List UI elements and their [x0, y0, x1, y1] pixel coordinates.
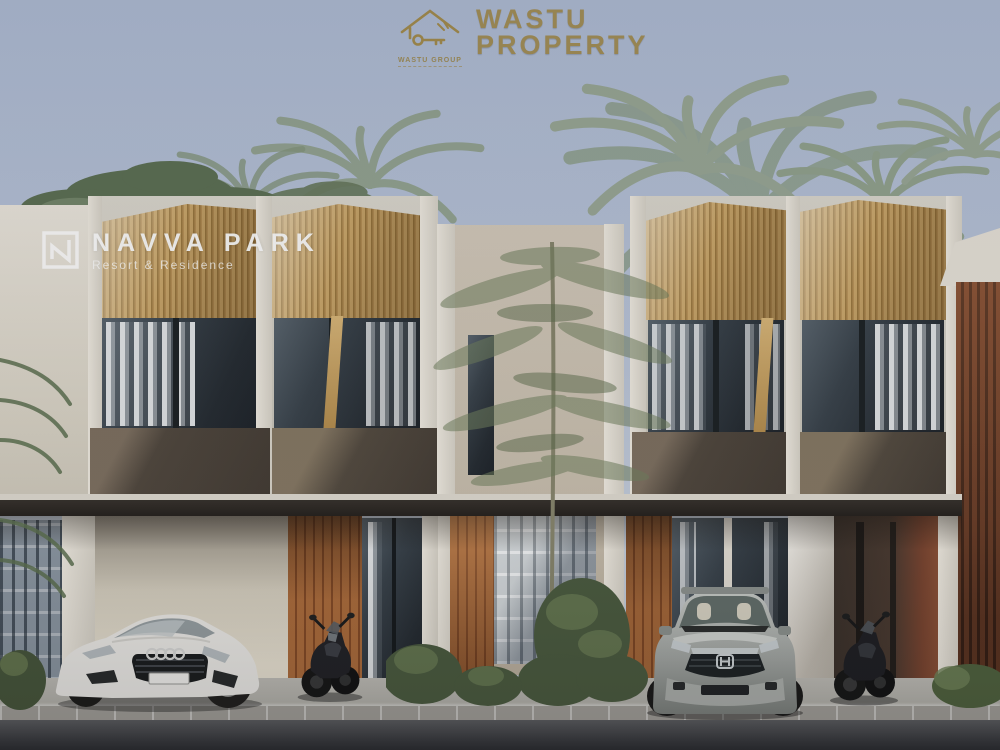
facade-mullion	[786, 196, 800, 508]
window-frame-bar	[173, 318, 179, 430]
curtain	[366, 322, 416, 426]
wastu-caption-rule	[398, 66, 462, 67]
timber-slat-panel	[800, 200, 946, 320]
wastu-property-logo: WASTU GROUP WASTU PROPERTY	[398, 6, 638, 86]
upper-window	[102, 318, 256, 430]
wastu-logo-mark: WASTU GROUP	[398, 6, 462, 67]
watermark-text-block: NAVVA PARK Resort & Residence	[92, 230, 321, 272]
motorcycle-left	[292, 600, 368, 708]
hedge	[930, 652, 1000, 708]
window-frame-bar	[859, 320, 865, 434]
shrubs	[386, 540, 686, 708]
awning	[90, 428, 270, 498]
asphalt-road	[0, 720, 1000, 750]
house-key-icon	[398, 6, 462, 52]
silver-suv-car	[645, 582, 805, 722]
awning	[800, 432, 946, 500]
navva-park-logo-icon	[42, 230, 80, 270]
architectural-render: NAVVA PARK Resort & Residence WASTU GROU…	[0, 0, 1000, 750]
wastu-line2: PROPERTY	[476, 32, 649, 58]
curtain	[106, 322, 195, 426]
wastu-line1: WASTU	[476, 6, 649, 32]
upper-window	[802, 320, 944, 434]
fern-fronds	[0, 320, 90, 640]
window-frame-bar	[713, 320, 719, 434]
watermark-tagline: Resort & Residence	[92, 258, 321, 272]
dark-timber-wall	[956, 282, 1000, 706]
awning	[272, 428, 438, 498]
wastu-group-caption: WASTU GROUP	[398, 57, 462, 64]
bush	[0, 636, 52, 710]
motorcycle-right	[824, 598, 904, 712]
watermark-title: NAVVA PARK	[92, 230, 321, 256]
wastu-logo-text: WASTU PROPERTY	[476, 6, 649, 58]
navva-park-watermark: NAVVA PARK Resort & Residence	[42, 230, 321, 272]
curtain	[875, 324, 940, 430]
upper-window	[274, 318, 420, 430]
white-coupe-car	[52, 596, 267, 714]
